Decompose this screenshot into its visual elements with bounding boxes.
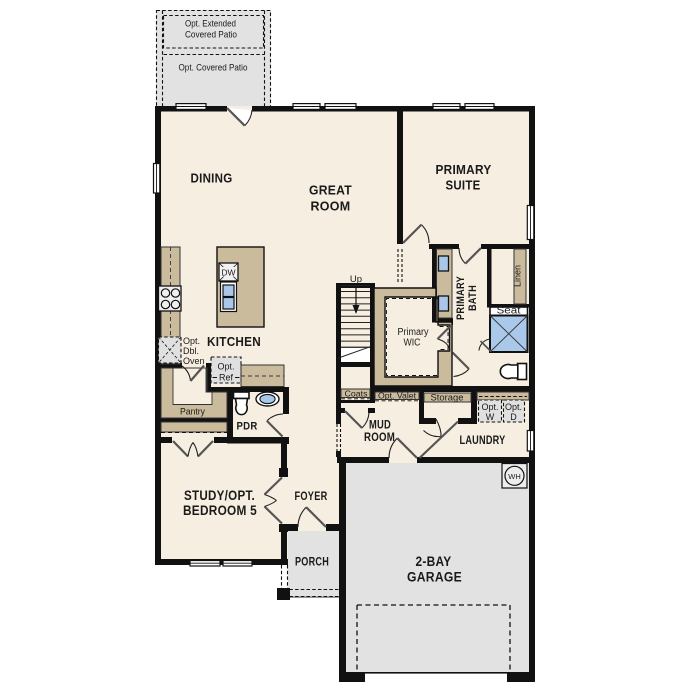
- svg-text:Opt.: Opt.: [481, 402, 498, 412]
- svg-text:FOYER: FOYER: [295, 491, 328, 503]
- svg-text:Ref: Ref: [219, 373, 234, 383]
- svg-text:D: D: [510, 412, 517, 422]
- svg-text:PDR: PDR: [237, 421, 258, 433]
- svg-text:KITCHEN: KITCHEN: [207, 334, 261, 349]
- svg-text:WH: WH: [508, 472, 521, 481]
- svg-text:Up: Up: [350, 274, 362, 285]
- svg-text:W: W: [486, 412, 495, 422]
- svg-text:ROOM: ROOM: [311, 199, 351, 214]
- svg-text:GARAGE: GARAGE: [407, 570, 462, 585]
- svg-text:Opt.: Opt.: [217, 362, 234, 372]
- svg-text:Pantry: Pantry: [180, 407, 205, 417]
- svg-text:PRIMARY: PRIMARY: [455, 276, 467, 320]
- svg-text:Linen: Linen: [513, 265, 523, 287]
- svg-text:SUITE: SUITE: [446, 178, 481, 193]
- svg-text:Opt. Covered Patio: Opt. Covered Patio: [179, 63, 248, 73]
- svg-text:Opt. Extended: Opt. Extended: [185, 19, 236, 29]
- svg-text:BEDROOM 5: BEDROOM 5: [183, 503, 257, 518]
- svg-text:PRIMARY: PRIMARY: [436, 162, 492, 177]
- svg-text:Storage: Storage: [431, 393, 464, 403]
- svg-text:Oven: Oven: [183, 356, 205, 366]
- svg-text:2-BAY: 2-BAY: [416, 554, 452, 569]
- svg-text:DINING: DINING: [191, 171, 233, 186]
- svg-text:WIC: WIC: [404, 338, 421, 349]
- svg-text:Opt.: Opt.: [183, 336, 200, 346]
- svg-text:PORCH: PORCH: [295, 557, 329, 569]
- svg-text:BATH: BATH: [467, 285, 479, 311]
- svg-text:Covered Patio: Covered Patio: [185, 30, 237, 40]
- svg-text:GREAT: GREAT: [309, 183, 352, 198]
- svg-text:Coats: Coats: [345, 389, 368, 399]
- svg-text:DW: DW: [221, 268, 235, 278]
- svg-text:LAUNDRY: LAUNDRY: [460, 433, 506, 447]
- svg-text:ROOM: ROOM: [364, 430, 395, 444]
- svg-text:Opt. Valet: Opt. Valet: [378, 391, 417, 401]
- svg-text:Dbl.: Dbl.: [183, 346, 199, 356]
- svg-text:Primary: Primary: [398, 327, 429, 338]
- svg-text:Opt.: Opt.: [505, 402, 522, 412]
- svg-text:STUDY/OPT.: STUDY/OPT.: [184, 488, 255, 503]
